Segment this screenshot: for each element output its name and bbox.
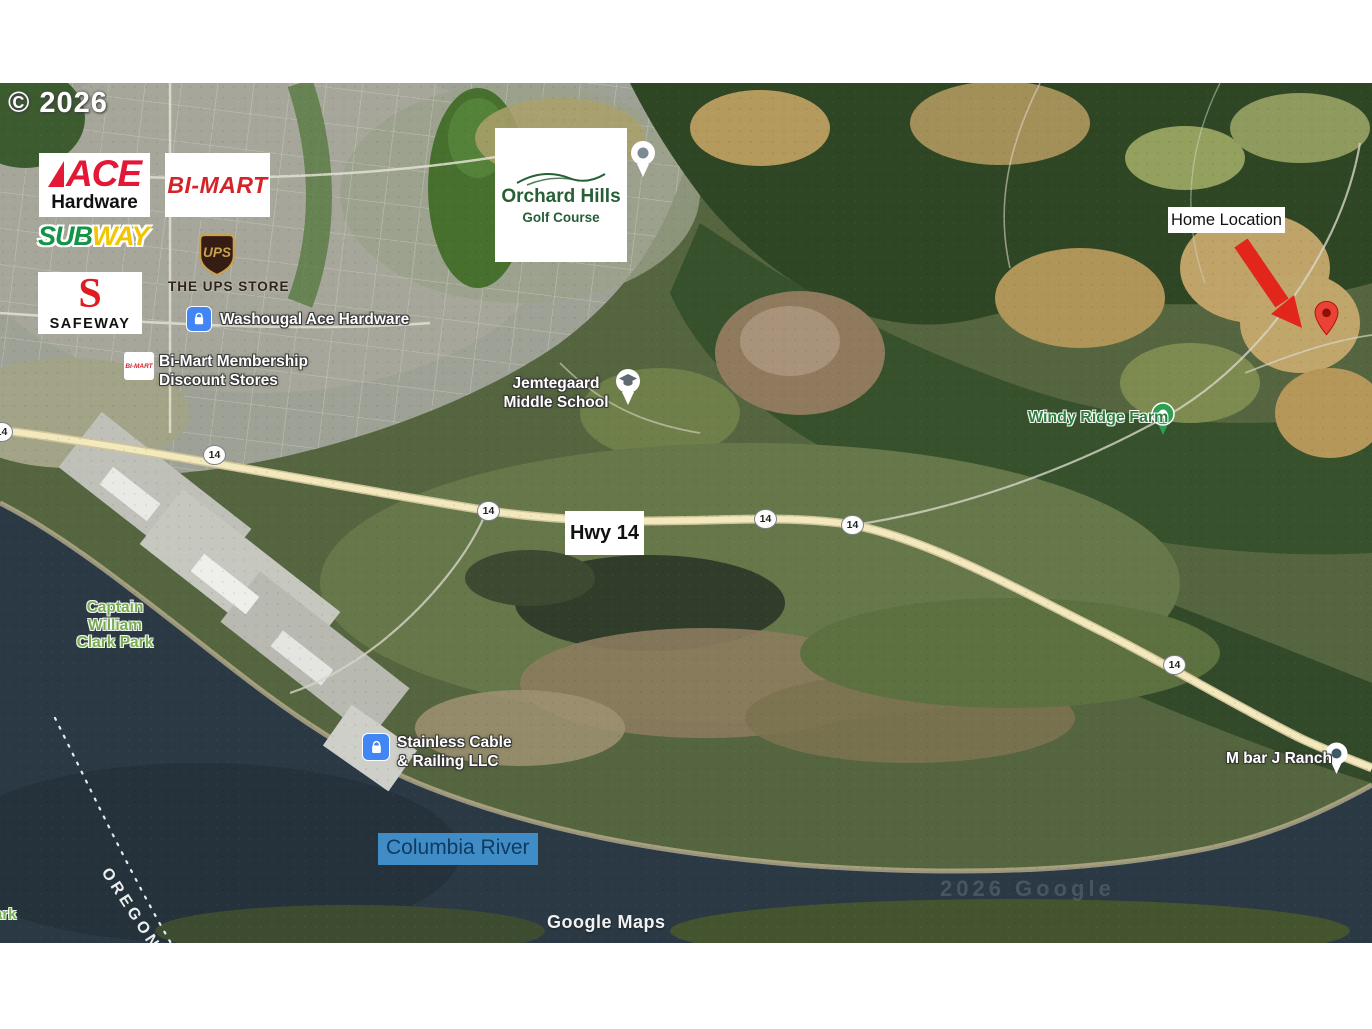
ups-shield-icon: UPS <box>198 233 236 282</box>
hwy14-annotation: Hwy 14 <box>565 511 644 555</box>
route-shield-14: 14 <box>203 445 226 465</box>
bimart-membership-line1: Bi-Mart Membership <box>159 352 308 371</box>
orchard-hills-arcs-icon <box>513 166 609 186</box>
jemtegaard-school-label[interactable]: Jemtegaard Middle School <box>496 374 616 412</box>
orchard-hills-logo: Orchard Hills Golf Course <box>495 128 627 262</box>
washougal-ace-poi[interactable]: Washougal Ace Hardware <box>186 306 409 332</box>
home-location-annotation: Home Location <box>1168 207 1285 233</box>
ace-sub: Hardware <box>51 192 138 214</box>
captain-clark-park-label[interactable]: Captain William Clark Park <box>55 599 175 652</box>
google-maps-watermark: Google Maps <box>547 912 666 933</box>
safeway-logo: S SAFEWAY <box>38 272 142 334</box>
ups-store-label: THE UPS STORE <box>168 279 290 294</box>
ups-acronym: UPS <box>203 245 231 260</box>
ace-hardware-logo: ACE Hardware <box>39 153 150 217</box>
shopping-bag-icon <box>186 306 212 332</box>
subway-logo: SUBWAY <box>38 221 149 252</box>
washougal-ace-label: Washougal Ace Hardware <box>220 310 409 329</box>
ace-name: ACE <box>66 157 141 191</box>
safeway-s-icon: S <box>78 274 101 314</box>
poi-pin-icon[interactable] <box>628 139 658 184</box>
bimart-membership-line2: Discount Stores <box>159 371 308 390</box>
windy-ridge-farm-label[interactable]: Windy Ridge Farm <box>1028 409 1168 427</box>
satellite-map[interactable]: © 2026 2026 Google Google Maps OREGON ar… <box>0 83 1372 943</box>
shopping-bag-icon <box>362 733 390 761</box>
bimart-mini-icon: BI-MART <box>124 352 154 380</box>
columbia-river-label[interactable]: Columbia River <box>378 833 538 865</box>
m-bar-j-ranch-label[interactable]: M bar J Ranch <box>1226 749 1332 768</box>
bimart-membership-poi[interactable]: BI-MART Bi-Mart Membership Discount Stor… <box>124 352 308 390</box>
copyright-watermark: © 2026 <box>8 87 108 120</box>
school-pin-icon[interactable] <box>613 367 643 412</box>
bimart-logo: BI-MART <box>165 153 270 217</box>
route-shield-14: 14 <box>841 515 864 535</box>
route-shield-14: 14 <box>1163 655 1186 675</box>
partial-park-label: ark <box>0 906 17 924</box>
stainless-cable-poi[interactable]: Stainless Cable & Railing LLC <box>362 733 512 771</box>
home-arrow-icon <box>1232 236 1317 341</box>
tiles-watermark: 2026 Google <box>940 876 1115 902</box>
home-pin-icon[interactable] <box>1314 300 1339 341</box>
route-shield-14: 14 <box>477 501 500 521</box>
route-shield-14: 14 <box>754 509 777 529</box>
ace-triangle-icon <box>48 161 64 187</box>
